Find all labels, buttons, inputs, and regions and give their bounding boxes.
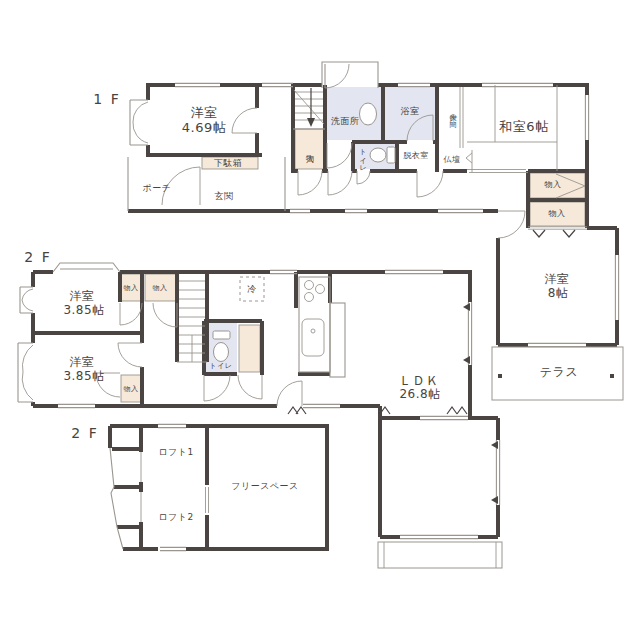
room-8-name: 洋室 [545,273,570,285]
japanese-room-label: 和室6帖 [499,120,548,133]
shoe-cabinet-label: 下駄箱 [214,159,243,168]
bathroom-label: 浴室 [401,107,420,116]
altar-label: 仏壇 [444,156,461,164]
storage-2f-c-label: 物入 [124,386,139,393]
loft2-label: ロフト2 [158,513,193,522]
entrance-label: 玄関 [215,192,234,201]
toilet-1f-icon [370,147,395,163]
porch-label: ポーチ [143,184,172,193]
toilet-2f-label: トイレ [210,363,233,370]
floor2-label: 2 F [24,250,51,264]
floor1-label: 1 F [93,92,120,106]
ldk-size: 26.8帖 [399,388,440,400]
loft1-label: ロフト1 [158,448,193,457]
storage-r2-label: 物入 [549,210,566,218]
sink-icon [360,103,377,125]
room-469-name: 洋室 [191,106,218,119]
storage-r1-label: 物入 [545,181,562,189]
free-space-label: フリースペース [231,482,299,491]
toilet-2f-icon [213,331,230,362]
room-385a-size: 3.85帖 [63,304,104,316]
room-469-size: 4.69帖 [182,121,226,134]
storage-2f-a-label: 物入 [124,285,139,292]
tokonoma-label: 床の間 [449,109,456,117]
refrigerator-label: 冷 [247,285,257,294]
ldk-name: ＬＤＫ [399,374,440,387]
room-385a-name: 洋室 [70,290,95,302]
room-385b-size: 3.85帖 [63,370,104,382]
dressing-room-label: 脱衣室 [403,152,429,160]
washroom-label: 洗面所 [331,117,360,126]
terrace-label: テラス [540,366,578,378]
toilet-1f-label: トイレ [359,144,366,168]
floorplan: 1 F 洋室 4.69帖 下駄箱 ポーチ 玄関 物入 洗面所 トイレ 浴室 脱衣… [0,0,640,640]
storage-2f-b-label: 物入 [153,285,168,292]
floor2-loft-label: 2 F [71,426,98,440]
room-8-size: 8帖 [548,287,569,299]
room-385b-name: 洋室 [70,356,95,368]
